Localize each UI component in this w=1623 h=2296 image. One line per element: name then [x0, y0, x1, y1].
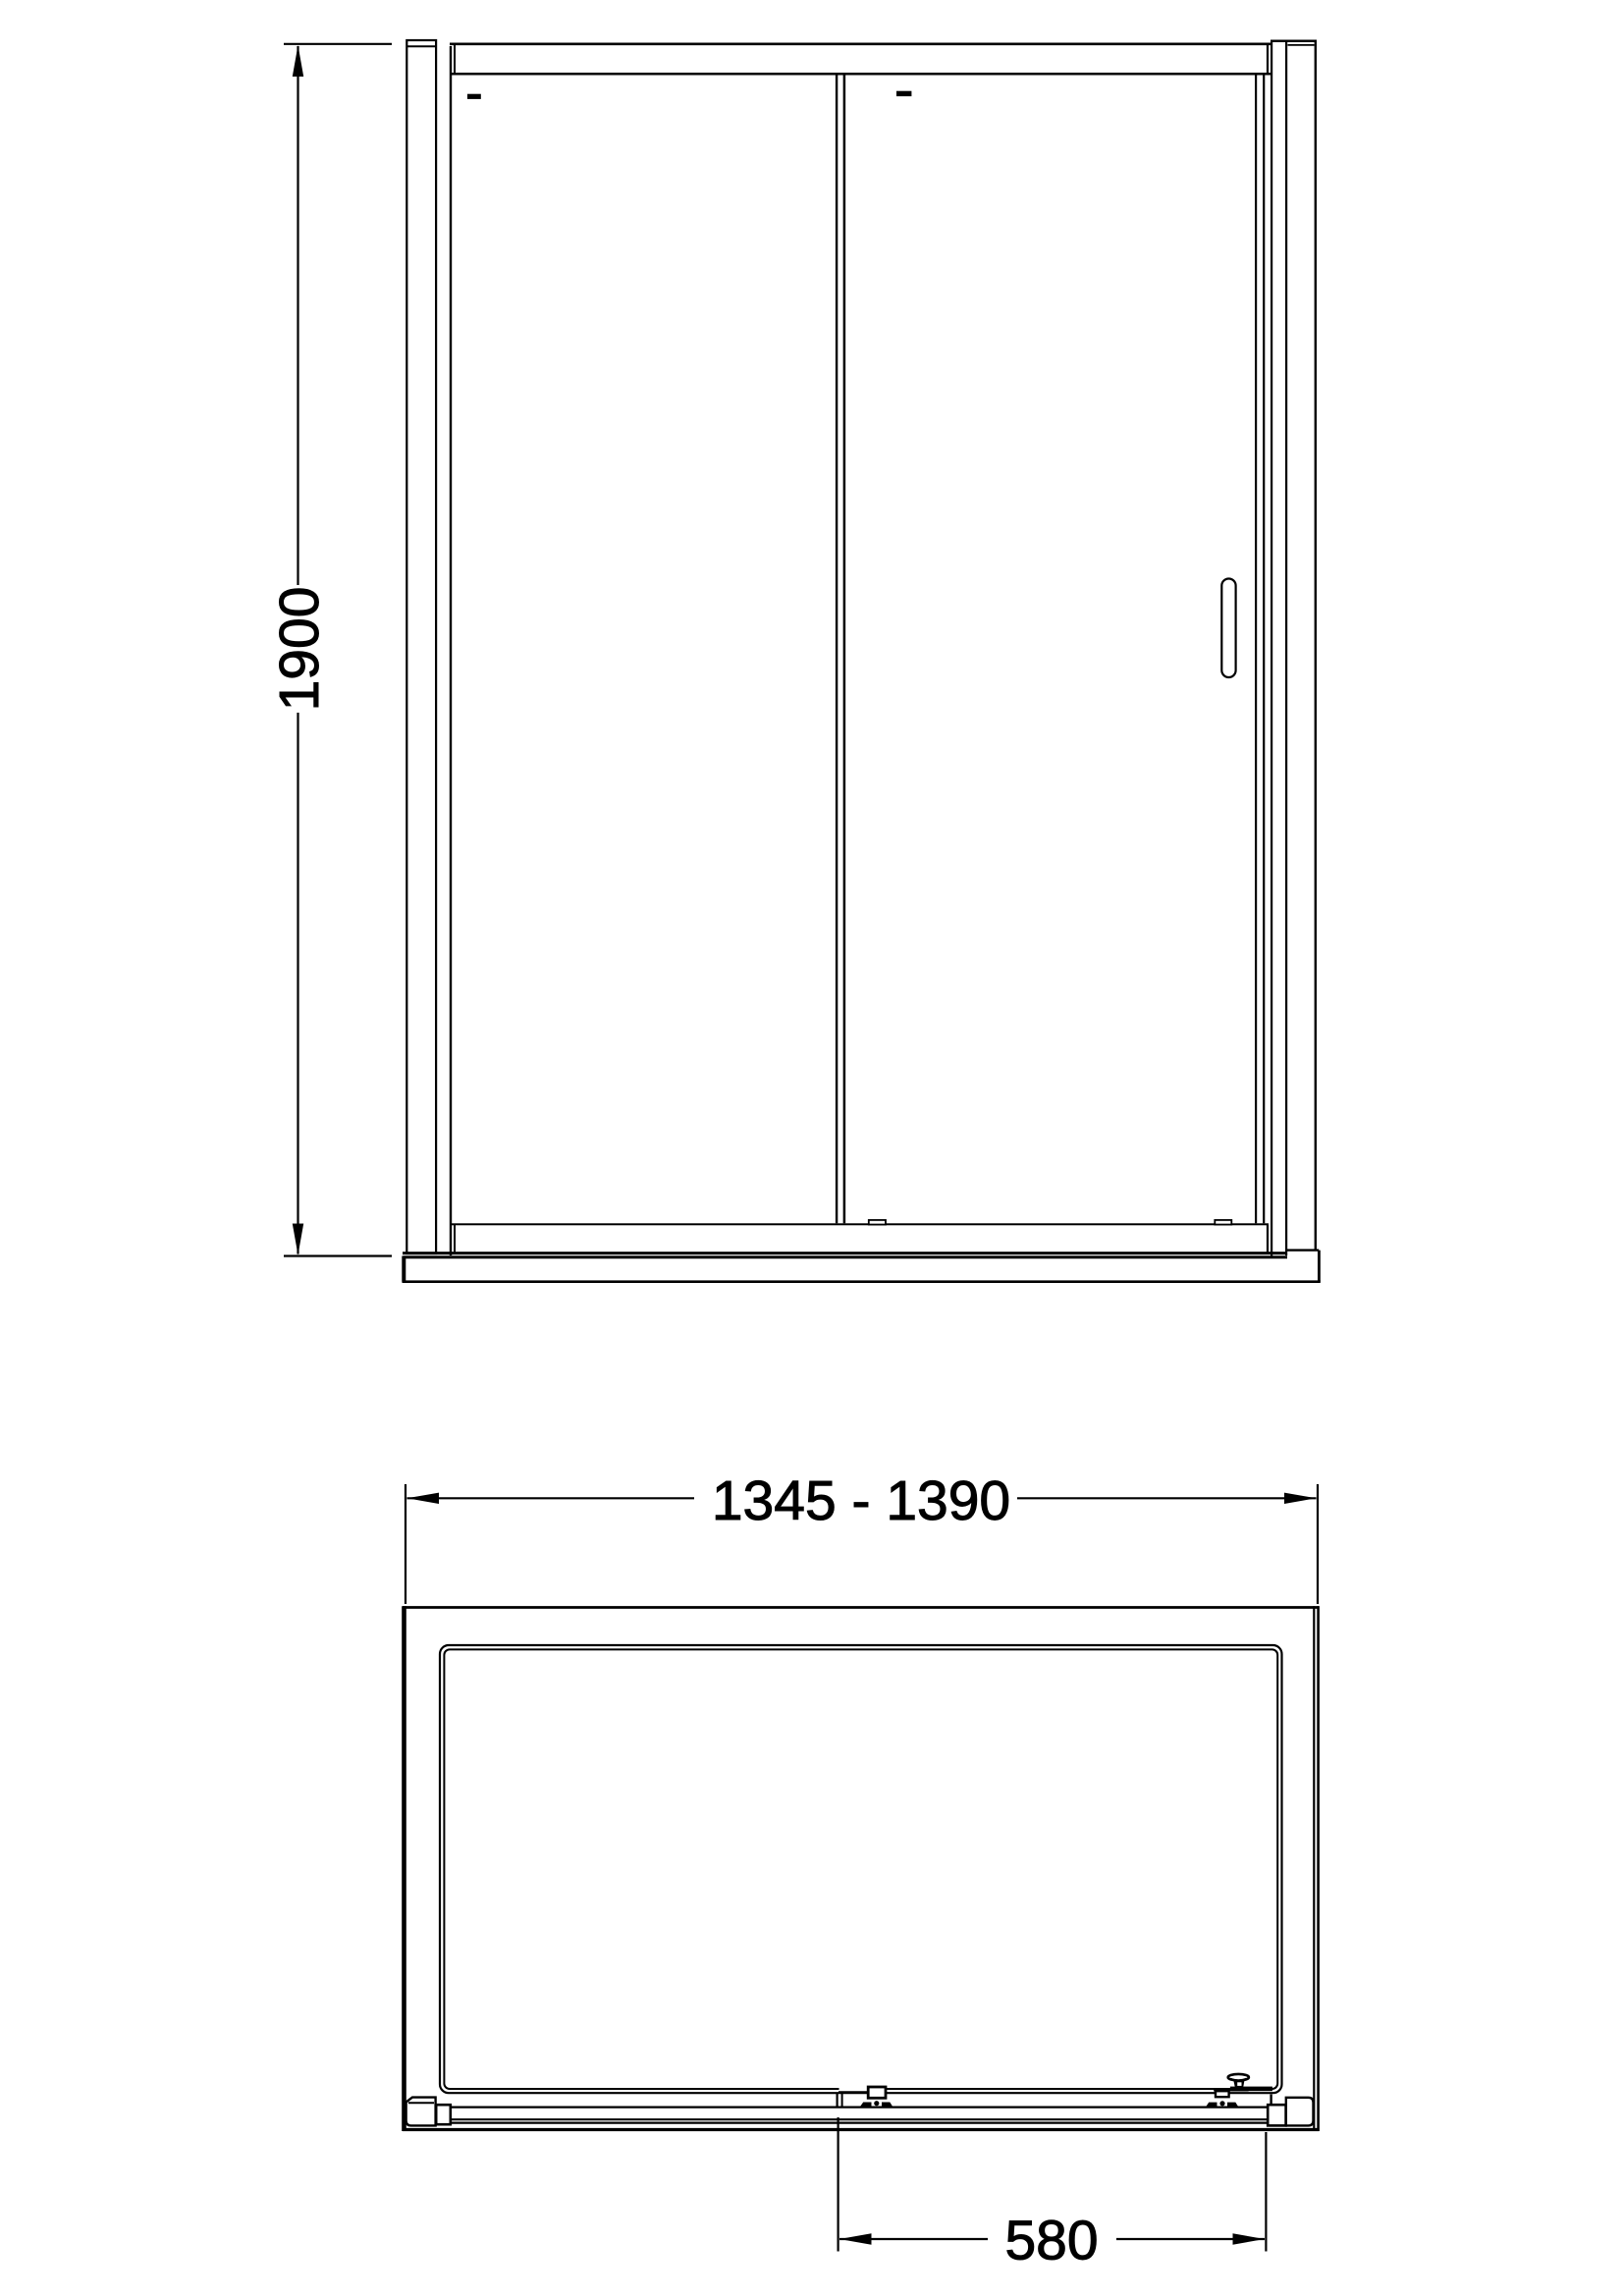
svg-text:1900: 1900 [268, 587, 331, 712]
svg-text:1345 - 1390: 1345 - 1390 [712, 1469, 1010, 1532]
svg-text:580: 580 [1004, 2210, 1098, 2272]
